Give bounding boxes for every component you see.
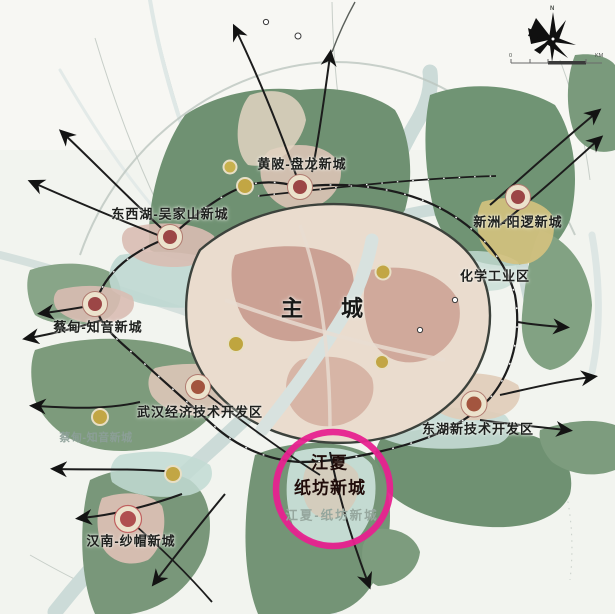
junction-dot bbox=[295, 33, 301, 39]
label-chemical-industry-zone: 化学工业区 bbox=[460, 266, 530, 285]
label-huangpi-panlong: 黄陂-盘龙新城 bbox=[257, 154, 346, 173]
junction-dot bbox=[452, 297, 457, 302]
node-shamao bbox=[115, 506, 142, 533]
junction-dot bbox=[263, 19, 268, 24]
scale-start-label: 0 bbox=[509, 53, 512, 59]
scale-segment bbox=[548, 61, 586, 65]
highlight-original-label: 江夏-纸坊新城 bbox=[285, 505, 378, 524]
node-core bbox=[511, 190, 525, 204]
node-yangluo bbox=[506, 185, 531, 210]
yellow-node bbox=[237, 178, 253, 194]
node-core bbox=[191, 380, 205, 394]
node-caidian bbox=[83, 292, 108, 317]
junction-dot bbox=[417, 327, 422, 332]
highlight-label-line2: 纸坊新城 bbox=[294, 474, 366, 499]
yellow-node bbox=[92, 409, 108, 425]
label-xinzhou-yangluo: 新洲-阳逻新城 bbox=[473, 212, 562, 231]
highlight-label-line1: 江夏 bbox=[311, 449, 349, 474]
node-panlong bbox=[288, 175, 313, 200]
yellow-node bbox=[375, 355, 389, 369]
label-caidian-zhiyin: 蔡甸-知音新城 bbox=[53, 317, 142, 336]
yellow-node bbox=[224, 161, 237, 174]
node-core bbox=[88, 297, 102, 311]
label-caidian-zhiyin-secondary: 蔡甸-知音新城 bbox=[59, 429, 132, 445]
node-wujiashan bbox=[158, 225, 183, 250]
yellow-node bbox=[228, 336, 244, 352]
node-core bbox=[120, 511, 136, 527]
planning-map: N 0 KM 黄陂-盘龙新城 东西湖-吴家山新城 新洲-阳逻新城 化学工业区 主… bbox=[0, 0, 615, 614]
label-donghu-new-tech-dev-zone: 东湖新技术开发区 bbox=[422, 419, 534, 438]
node-donghu bbox=[461, 391, 487, 417]
scale-unit-label: KM bbox=[595, 53, 604, 59]
node-core bbox=[163, 230, 177, 244]
label-dongxihu-wujiashan: 东西湖-吴家山新城 bbox=[111, 204, 228, 223]
label-hannan-shamao: 汉南-纱帽新城 bbox=[86, 531, 175, 550]
node-wedz bbox=[186, 375, 211, 400]
node-core bbox=[467, 397, 482, 412]
yellow-node bbox=[165, 466, 181, 482]
label-wuhan-economic-tech-dev-zone: 武汉经济技术开发区 bbox=[137, 402, 263, 421]
compass-north-label: N bbox=[550, 6, 554, 12]
label-main-city: 主 城 bbox=[265, 291, 379, 323]
compass-center bbox=[551, 37, 555, 41]
yellow-node bbox=[376, 265, 391, 280]
node-core bbox=[293, 180, 307, 194]
